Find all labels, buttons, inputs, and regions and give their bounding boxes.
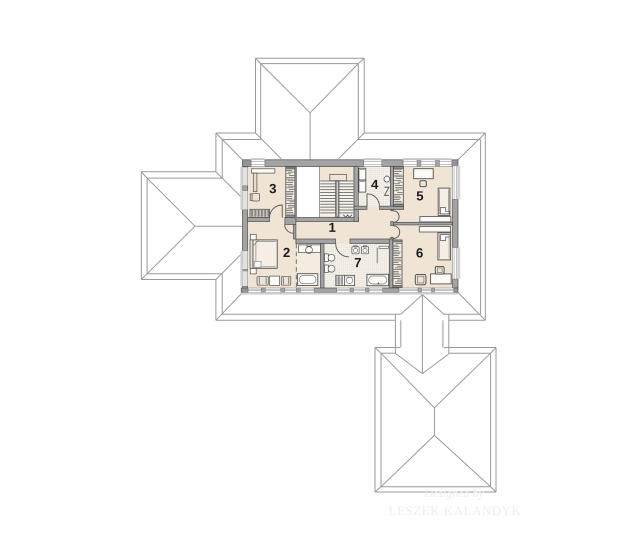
- svg-text:Designed by: Designed by: [423, 486, 484, 500]
- svg-text:LESZEK KALANDYK: LESZEK KALANDYK: [389, 503, 522, 518]
